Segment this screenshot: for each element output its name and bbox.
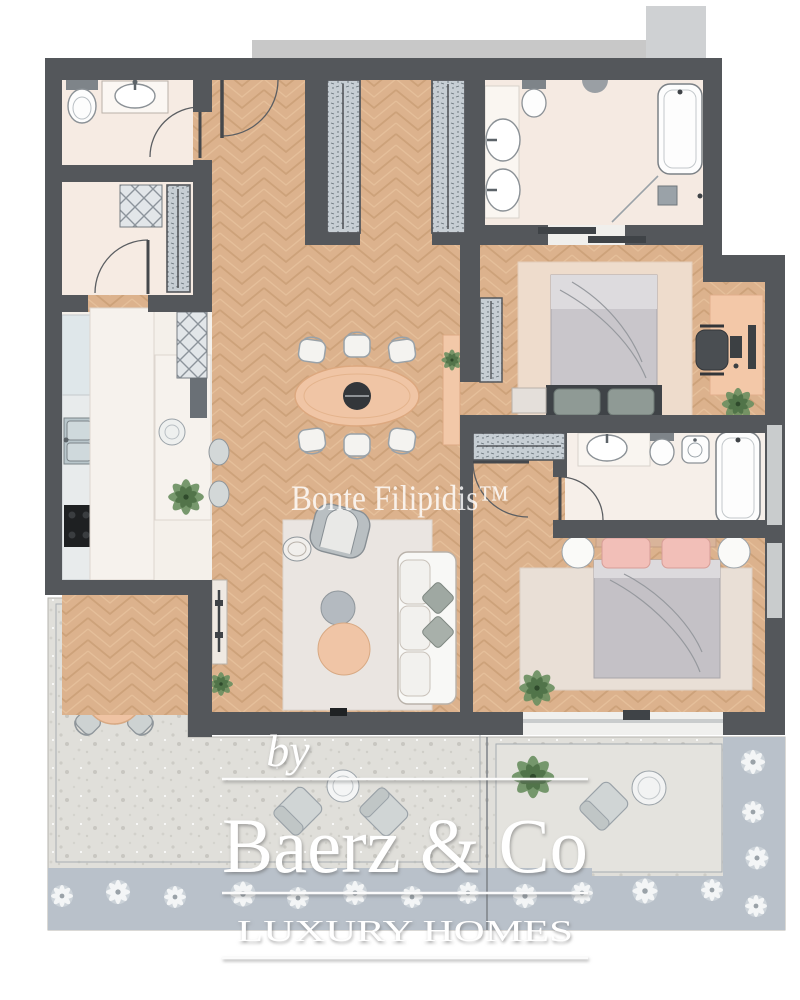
logo-name: Baerz & Co	[222, 802, 588, 889]
nightstand	[562, 536, 594, 568]
floor-plan: Bonte Filipidis™ by Baerz & Co LUXURY HO…	[0, 0, 800, 1000]
bed-pillow	[554, 389, 600, 415]
bathtub-2	[716, 432, 760, 524]
toilet	[650, 433, 674, 465]
sideboard-plant	[441, 349, 462, 370]
sliding-door-handle	[623, 710, 650, 720]
bar-stool	[209, 481, 229, 507]
tall-cabinet	[177, 312, 207, 378]
bathtub	[658, 84, 702, 174]
logo-tagline: LUXURY HOMES	[237, 913, 573, 948]
washer-unit	[120, 185, 162, 227]
pink-pillow	[662, 538, 710, 568]
kitchen-sink	[64, 418, 95, 464]
toilet	[66, 80, 98, 123]
exterior-shadow	[252, 6, 706, 58]
nightstand	[718, 536, 750, 568]
sofa	[398, 552, 456, 704]
tv-console	[212, 580, 227, 664]
kitchen-plant	[168, 479, 204, 515]
toilet	[522, 80, 546, 117]
living-plant	[209, 672, 233, 696]
sliding-door-leaf	[588, 236, 646, 243]
monitor	[748, 325, 756, 369]
counter-bowl	[159, 419, 185, 445]
kitchen-island	[90, 308, 154, 580]
terrace-side-table-2	[632, 771, 666, 805]
kitchen-cabinet-dark	[190, 378, 207, 418]
bar-stool	[209, 439, 229, 465]
window-right-2	[767, 543, 782, 618]
logo-prefix: by	[266, 725, 310, 776]
bathroom-sink	[102, 80, 168, 114]
bedroom2-plant	[519, 670, 555, 706]
floor-plan-page: Bonte Filipidis™ by Baerz & Co LUXURY HO…	[0, 0, 800, 1000]
watermark: Bonte Filipidis™	[291, 478, 509, 518]
sliding-door-leaf	[538, 227, 596, 234]
pink-pillow	[602, 538, 650, 568]
ottoman	[318, 623, 370, 675]
desk-chair	[696, 326, 728, 374]
sliding-door-handle	[330, 708, 347, 716]
bidet	[682, 436, 709, 463]
pouf	[321, 591, 355, 625]
double-bed-1	[546, 275, 662, 419]
terrace-plant	[512, 756, 555, 799]
side-table-oval	[283, 537, 311, 561]
bed-pillow	[608, 389, 654, 415]
window-right-1	[767, 425, 782, 525]
keyboard	[730, 336, 742, 358]
terrace-side-table	[327, 770, 359, 802]
bedroom-bench	[512, 388, 546, 413]
